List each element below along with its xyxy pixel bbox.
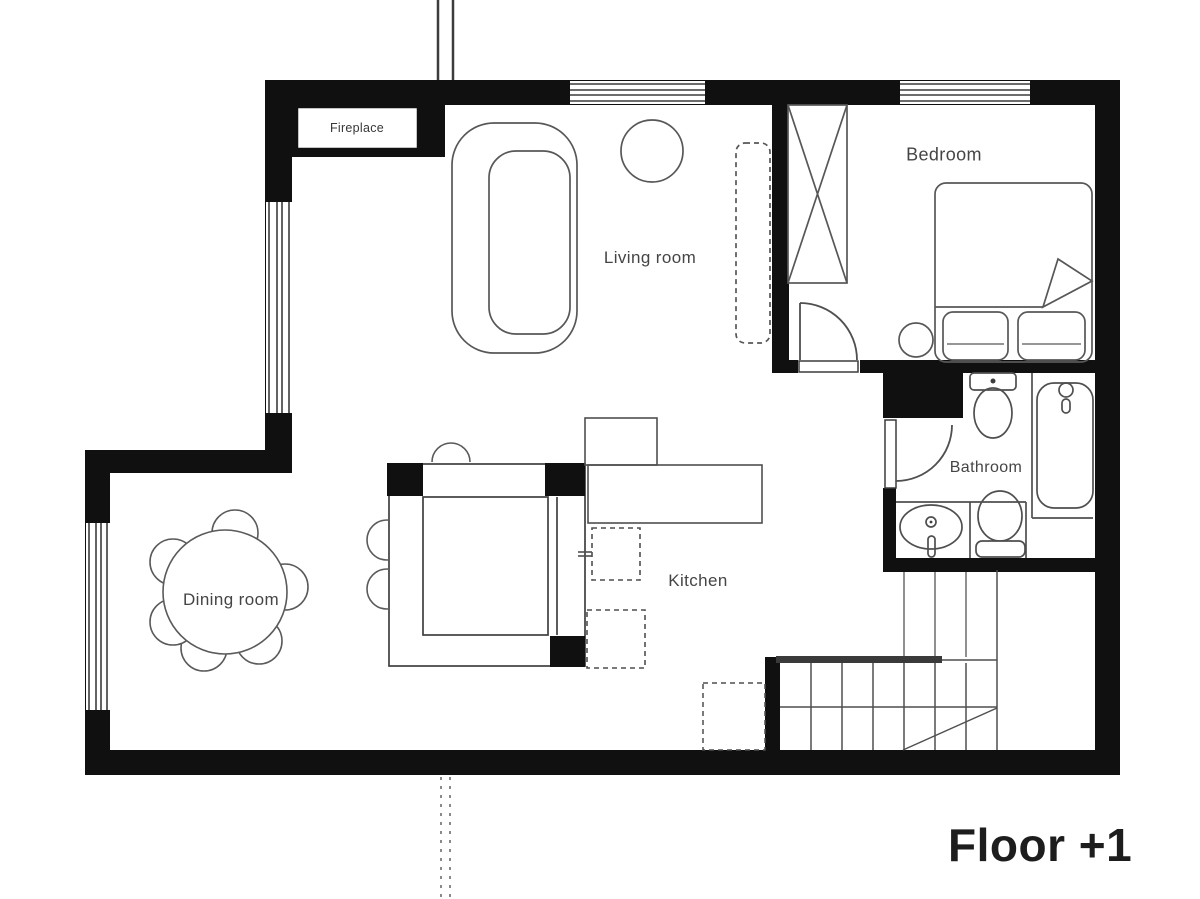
bathroom-door bbox=[885, 420, 952, 488]
pillow-left bbox=[943, 312, 1008, 360]
section-dashed-line bbox=[441, 777, 450, 899]
wall-bathroom-block bbox=[883, 373, 963, 418]
stair-handrail bbox=[776, 656, 942, 663]
window-living-top bbox=[570, 81, 705, 104]
floor-plan: Fireplace Living room Bedroom Bathroom K… bbox=[0, 0, 1200, 899]
window-living-left bbox=[266, 202, 292, 413]
sofa-seat bbox=[489, 151, 570, 334]
kitchen-cabinet-dashed-1 bbox=[592, 528, 640, 580]
double-bed bbox=[935, 183, 1092, 362]
dining-room-label: Dining room bbox=[183, 590, 279, 610]
kitchen-counter bbox=[588, 465, 762, 523]
bedroom-label: Bedroom bbox=[906, 145, 982, 166]
wall-bottom bbox=[85, 750, 1120, 775]
living-room-label: Living room bbox=[604, 248, 696, 268]
chimney-flue bbox=[438, 0, 453, 84]
staircase bbox=[703, 570, 997, 750]
window-dining-left bbox=[86, 523, 110, 710]
wall-step bbox=[85, 450, 292, 473]
blanket-fold bbox=[1043, 259, 1092, 307]
wardrobe bbox=[788, 105, 847, 283]
bedside-table bbox=[899, 323, 933, 357]
coffee-table bbox=[621, 120, 683, 182]
kitchen-appliance bbox=[585, 418, 657, 465]
stair-upper-flight bbox=[904, 572, 966, 657]
pillow-right bbox=[1018, 312, 1085, 360]
wall-stair-stub bbox=[765, 657, 780, 752]
kitchen-area bbox=[367, 418, 762, 668]
bathtub bbox=[1032, 373, 1093, 518]
toilet-top bbox=[970, 373, 1016, 438]
fireplace-label: Fireplace bbox=[330, 121, 384, 135]
sink-faucet bbox=[928, 536, 935, 557]
wall-bedroom-bottom-left bbox=[772, 360, 798, 373]
wall-right bbox=[1095, 80, 1120, 775]
floor-title: Floor +1 bbox=[948, 818, 1132, 872]
sink bbox=[900, 505, 962, 557]
bedroom-door bbox=[799, 303, 858, 372]
floor-plan-drawing bbox=[0, 0, 1200, 899]
bathtub-faucet bbox=[1059, 383, 1073, 397]
kitchen-cabinet-dashed-2 bbox=[587, 610, 645, 668]
kitchen-label: Kitchen bbox=[668, 571, 728, 591]
bathroom-label: Bathroom bbox=[950, 459, 1023, 477]
wall-living-bedroom-divider bbox=[772, 103, 789, 373]
living-room-furniture bbox=[452, 120, 770, 353]
dashed-storage-box bbox=[703, 683, 765, 750]
walls bbox=[85, 80, 1120, 775]
stair-break-line bbox=[903, 708, 997, 750]
window-bedroom-top bbox=[900, 81, 1030, 104]
wall-bathroom-left-lower bbox=[883, 488, 896, 558]
sofa-outer bbox=[452, 123, 577, 353]
toilet-bottom bbox=[976, 491, 1025, 557]
wall-bathroom-bottom bbox=[883, 558, 1120, 572]
tv-bench bbox=[736, 143, 770, 343]
